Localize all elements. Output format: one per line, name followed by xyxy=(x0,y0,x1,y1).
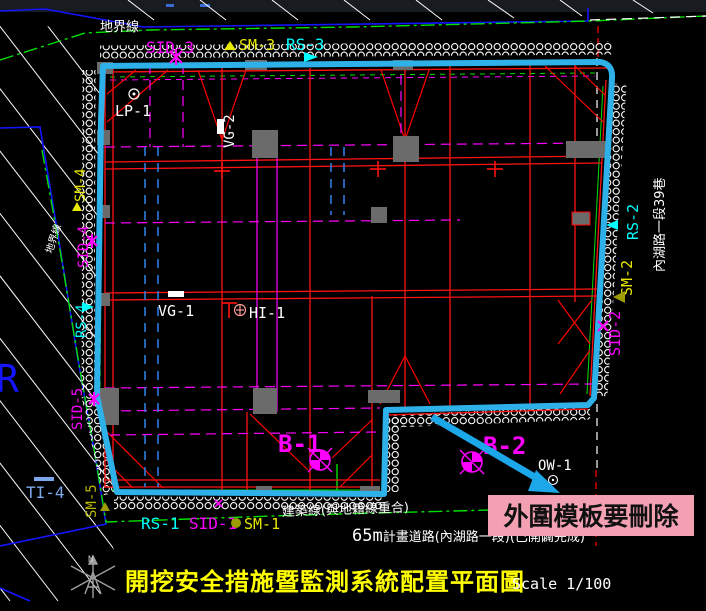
vg2-label: VG-2 xyxy=(222,114,238,148)
sid5-label: SID-5 xyxy=(70,388,86,430)
sm4-label: SM-4 xyxy=(73,168,89,202)
sid3-label: SID-3 xyxy=(146,38,194,57)
rs2-label: RS-2 xyxy=(624,204,642,240)
sm1-dot-icon xyxy=(231,518,241,528)
rs1-label: RS-1 xyxy=(141,514,180,533)
clipped-top-mark xyxy=(166,4,174,7)
b1-marker xyxy=(308,448,332,472)
rs3-label: RS-3 xyxy=(286,35,325,54)
sm3-label: SM-3 xyxy=(239,36,275,54)
b2-marker xyxy=(460,450,484,474)
ti4-label: TI-4 xyxy=(26,483,65,502)
drawing-title: 開挖安全措施暨監測系統配置平面圖 xyxy=(125,568,525,596)
site-plan-canvas[interactable]: R xyxy=(0,0,706,611)
parcel-text: R xyxy=(0,357,19,401)
hi1-marker xyxy=(235,304,246,316)
callout-text: 外圍模板要刪除 xyxy=(503,502,679,531)
vg1-label: VG-1 xyxy=(158,302,194,320)
ti4-marker xyxy=(34,477,54,481)
north-label: N xyxy=(88,555,93,565)
drawing-scale: Scale 1/100 xyxy=(512,575,611,593)
sm2-label: SM-2 xyxy=(618,260,636,296)
sid1-label: SID-1 xyxy=(189,514,237,533)
callout-box[interactable]: 外圍模板要刪除 xyxy=(488,495,694,536)
sm5-label: SM-5 xyxy=(84,484,100,518)
hi1-label: HI-1 xyxy=(249,304,285,322)
sid2-label: SID-2 xyxy=(606,311,624,356)
sm1-label: SM-1 xyxy=(244,515,280,533)
sid4-label: SID-4 xyxy=(76,226,92,268)
cad-drawing-viewport[interactable]: R xyxy=(0,0,706,611)
b1-label: B-1 xyxy=(278,430,321,458)
vg1-marker xyxy=(168,291,184,297)
boundary-label-top: 地界線 xyxy=(100,19,139,35)
road-right-label: 內湖路一段39巷 xyxy=(652,177,668,272)
lp1-label: LP-1 xyxy=(115,102,151,120)
top-window-strip xyxy=(0,0,706,12)
ow1-label: OW-1 xyxy=(538,458,572,474)
